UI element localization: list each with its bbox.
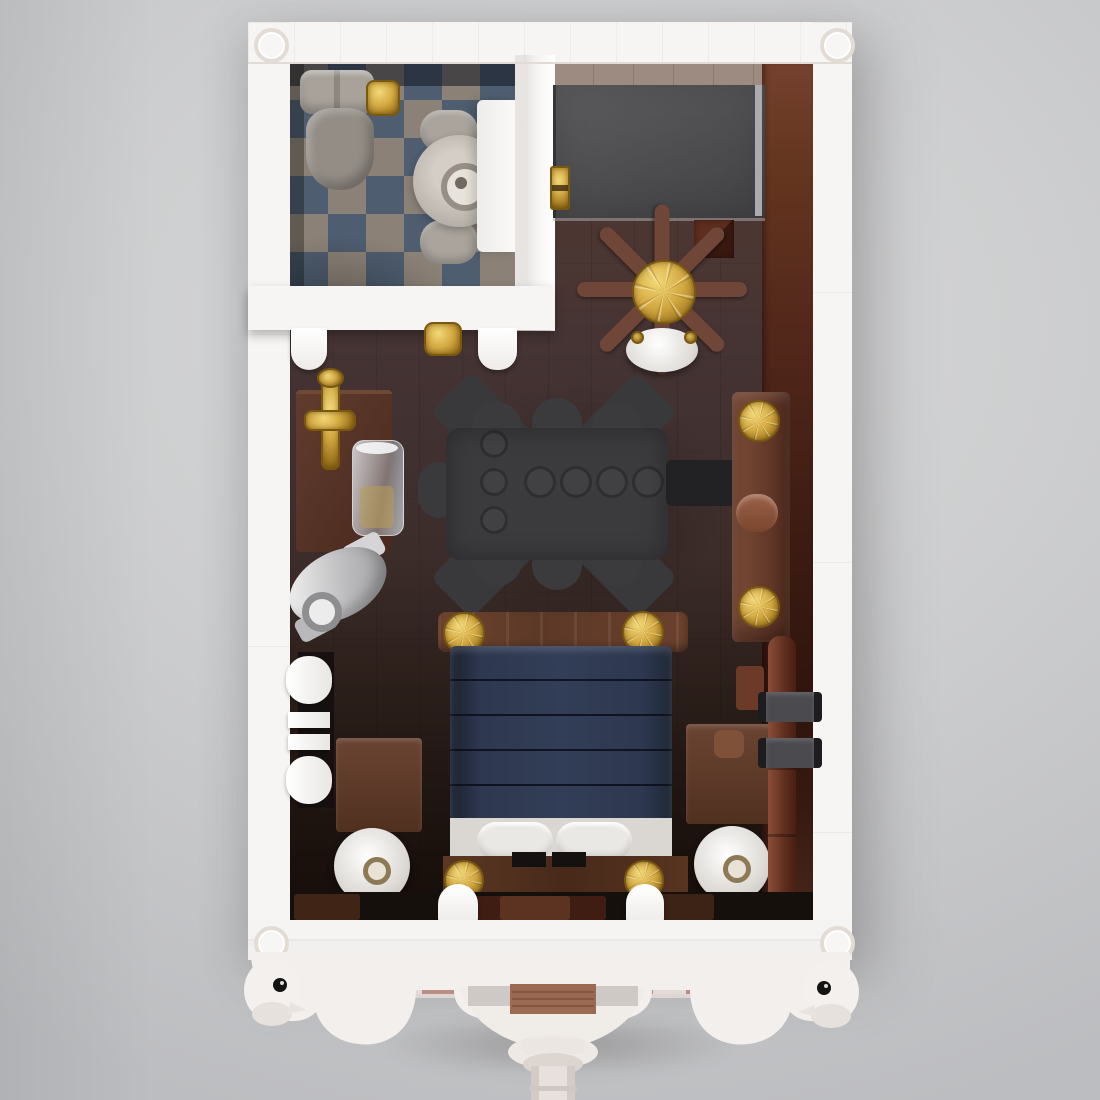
step-side-left xyxy=(468,986,514,1006)
pedestal-neck xyxy=(521,1038,585,1054)
balcony-ornament xyxy=(0,0,1100,1100)
lego-apartment-render xyxy=(0,0,1100,1100)
step-side-right xyxy=(592,986,638,1006)
